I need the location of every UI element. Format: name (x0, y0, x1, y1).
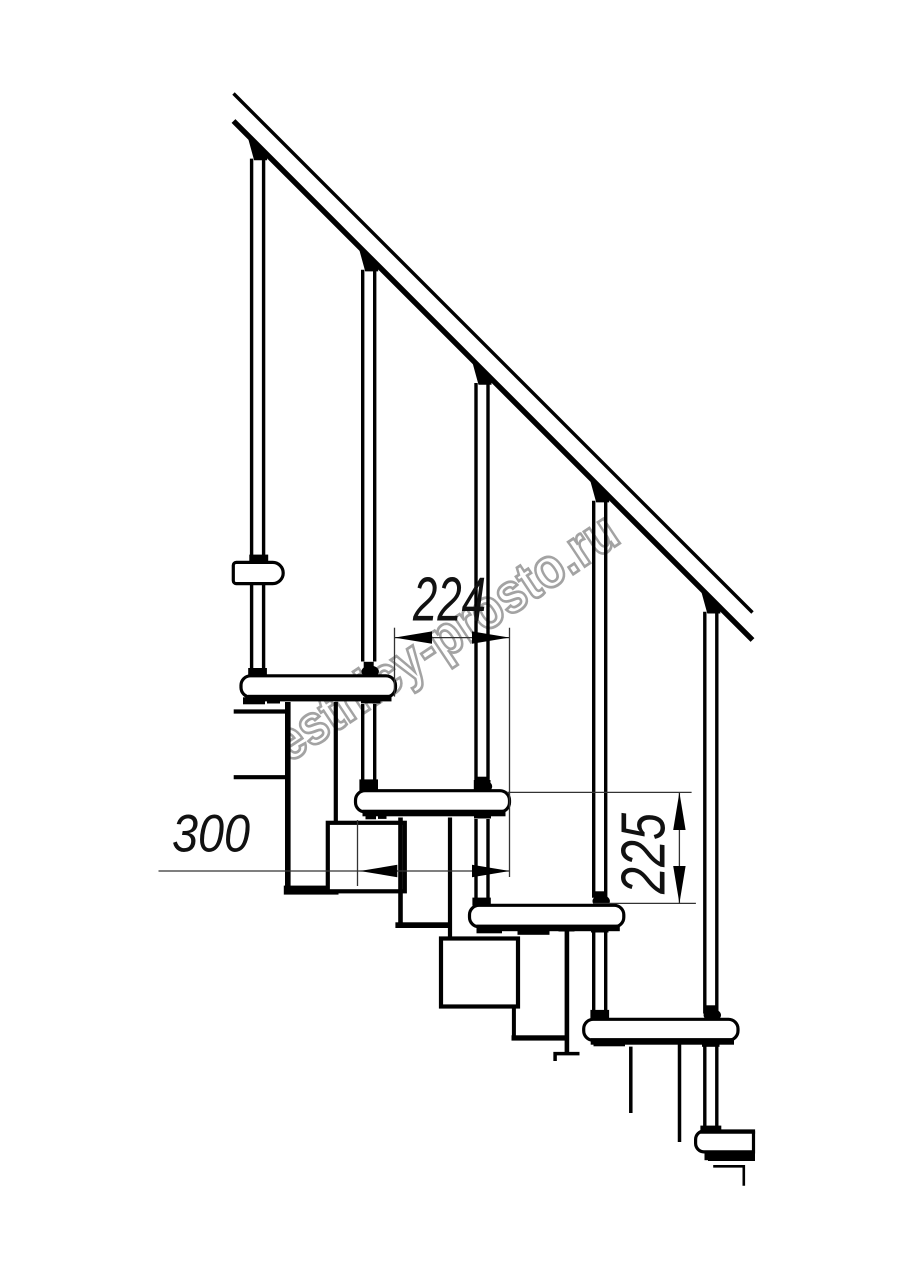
svg-text:225: 225 (610, 813, 679, 895)
svg-text:224: 224 (412, 566, 486, 635)
svg-text:300: 300 (172, 805, 250, 864)
